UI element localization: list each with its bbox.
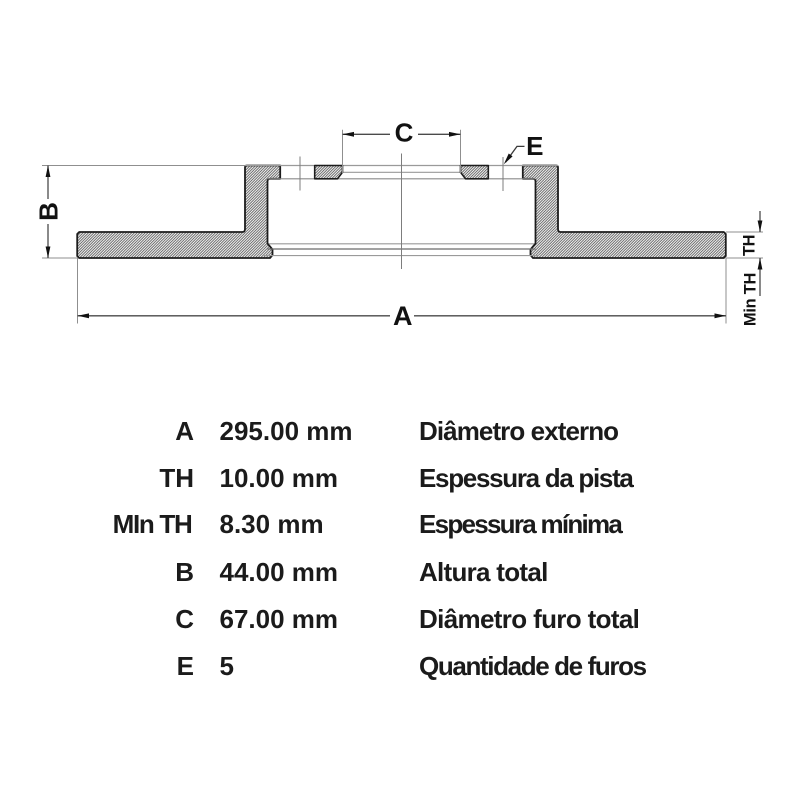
svg-text:A: A: [393, 301, 413, 331]
svg-text:TH: TH: [741, 235, 759, 256]
svg-text:Min TH: Min TH: [742, 273, 760, 326]
svg-text:C: C: [395, 118, 414, 148]
svg-text:B: B: [34, 202, 64, 221]
svg-text:E: E: [526, 131, 543, 161]
